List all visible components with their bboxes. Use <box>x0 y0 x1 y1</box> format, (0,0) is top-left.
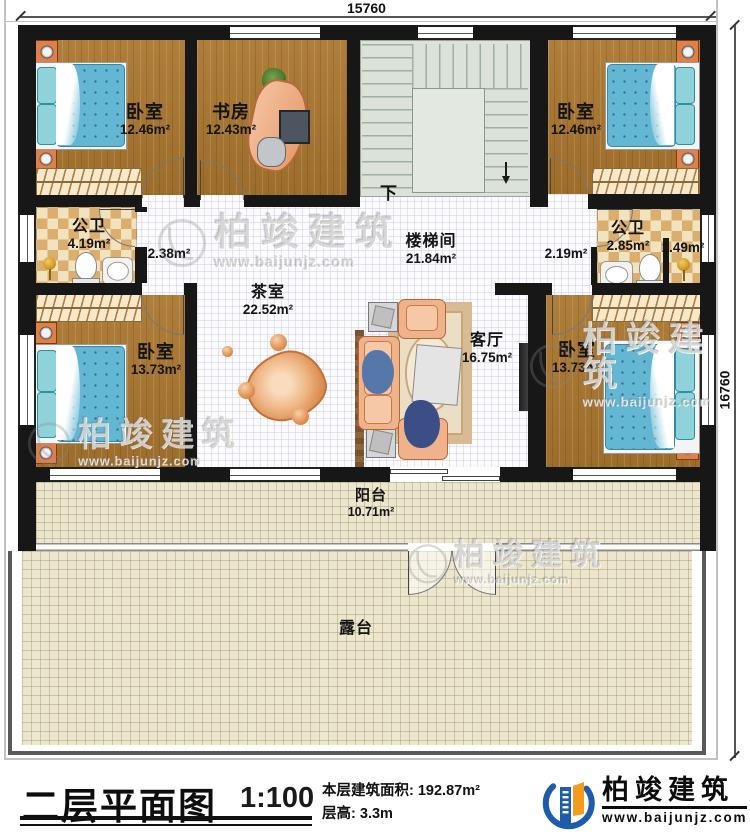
room-area: 4.19m² <box>68 236 111 251</box>
side-table <box>368 302 398 332</box>
tea-stool <box>292 408 309 425</box>
room-label-bedroom-bl: 卧室 13.73m² <box>131 342 181 377</box>
room-area: 1.49m² <box>662 240 705 255</box>
dimension-line-top <box>20 16 716 18</box>
wall-segment <box>18 283 142 295</box>
bed-pillow <box>37 67 57 104</box>
room-area: 21.84m² <box>405 251 456 266</box>
wall-segment <box>700 25 716 215</box>
coffee-table <box>412 344 463 406</box>
person-figure <box>362 350 394 394</box>
window <box>573 25 676 40</box>
room-label-bath-right: 公卫 2.85m² <box>607 220 650 253</box>
room-label-bedroom-tr: 卧室 12.46m² <box>551 102 601 137</box>
wall-segment <box>184 195 200 207</box>
wall-segment <box>592 283 700 295</box>
bed-pillow <box>37 104 57 145</box>
bed-pillow <box>675 392 695 440</box>
wall-segment <box>700 425 716 551</box>
wall-segment <box>700 262 716 335</box>
logo-divider <box>602 806 747 809</box>
wall-segment <box>244 195 360 207</box>
room-label-bedroom-tl: 卧室 12.46m² <box>120 102 170 137</box>
title-underline <box>20 824 312 826</box>
sofa-cushion <box>364 395 392 424</box>
area-label-shower: 1.49m² <box>662 240 705 255</box>
room-area: 2.38m² <box>148 246 191 261</box>
drawing-meta: 本层建筑面积: 192.87m² 层高: 3.3m <box>322 780 480 826</box>
nightstand <box>34 442 57 464</box>
window <box>18 335 36 425</box>
room-name: 卧室 <box>551 102 601 122</box>
wardrobe <box>592 168 699 196</box>
shower-stem <box>683 270 685 281</box>
wall-segment <box>135 207 147 212</box>
armchair-cushion <box>406 305 438 331</box>
room-area: 12.43m² <box>206 122 256 137</box>
computer-monitor <box>279 110 310 144</box>
person-figure <box>404 400 440 448</box>
wall-segment <box>18 425 36 551</box>
room-label-living-room: 客厅 16.75m² <box>462 332 512 365</box>
stair-direction-arrow <box>505 162 507 177</box>
shower-stem <box>49 269 51 280</box>
room-area: 22.52m² <box>243 302 293 317</box>
wall-segment <box>18 25 36 215</box>
wall-segment <box>18 25 230 40</box>
wall-segment <box>530 40 548 207</box>
wall-segment <box>160 467 230 482</box>
room-name: 阳台 <box>348 488 395 505</box>
wall-segment <box>597 199 700 209</box>
bed-sheet-fold <box>56 346 80 440</box>
nightstand <box>34 148 57 170</box>
room-area: 13.73m² <box>552 360 602 375</box>
floor-area-line: 本层建筑面积: 192.87m² <box>322 780 480 803</box>
window <box>50 467 160 482</box>
wardrobe <box>36 294 142 322</box>
nightstand <box>676 148 699 170</box>
toilet <box>639 254 661 282</box>
stair-landing <box>412 88 485 193</box>
wardrobe <box>36 168 142 196</box>
room-name: 客厅 <box>462 332 512 350</box>
room-label-balcony: 阳台 10.71m² <box>348 488 395 519</box>
room-label-terrace: 露台 <box>339 620 373 638</box>
tea-stool <box>270 334 287 351</box>
wall-segment <box>320 25 418 40</box>
room-name: 书房 <box>206 102 256 122</box>
room-area: 10.71m² <box>348 505 395 519</box>
room-name: 茶室 <box>243 284 293 302</box>
paper-edge-top <box>4 21 718 22</box>
room-area: 16.75m² <box>462 350 512 365</box>
side-table <box>366 426 396 458</box>
window <box>700 335 716 425</box>
room-name: 楼梯间 <box>405 233 456 251</box>
wall-segment <box>500 467 573 482</box>
area-label-hall-left: 2.38m² <box>148 246 191 261</box>
wall-segment <box>184 283 197 295</box>
nightstand <box>34 322 57 344</box>
bed-pillow <box>37 392 57 438</box>
room-name: 卧室 <box>552 340 602 360</box>
wall-segment <box>18 467 50 482</box>
stair-down-label: 下 <box>380 179 397 204</box>
wall-segment <box>320 467 390 482</box>
wall-segment <box>347 25 360 207</box>
stair-flight-top <box>412 44 528 88</box>
wall-segment <box>18 262 36 335</box>
sliding-door <box>442 476 500 481</box>
wall-segment <box>185 295 197 467</box>
bed-sheet-fold <box>650 344 674 448</box>
room-name: 公卫 <box>607 220 650 238</box>
room-area: 12.46m² <box>551 122 601 137</box>
dimension-line-right <box>734 25 736 758</box>
room-label-bath-left: 公卫 4.19m² <box>68 218 111 251</box>
wall-segment <box>473 25 573 40</box>
title-underline <box>20 816 312 820</box>
paper-edge-left <box>4 0 6 760</box>
wall-segment <box>495 283 548 295</box>
wall-segment <box>135 247 147 283</box>
room-name: 卧室 <box>131 342 181 362</box>
room-area: 13.73m² <box>131 362 181 377</box>
room-name: 公卫 <box>68 218 111 236</box>
nightstand <box>676 40 699 63</box>
stair-flight-left <box>362 44 412 193</box>
balcony-railing <box>36 543 408 551</box>
bed-sheet-fold <box>56 64 80 145</box>
window <box>573 467 676 482</box>
room-name: 露台 <box>339 620 373 638</box>
room-label-bedroom-br: 卧室 13.73m² <box>552 340 602 375</box>
floor-height-line: 层高: 3.3m <box>322 803 480 826</box>
bed-sheet-fold <box>650 64 674 145</box>
window <box>418 25 473 40</box>
dimension-width-label: 15760 <box>347 0 386 16</box>
paper-edge-bottom <box>4 758 718 760</box>
wardrobe <box>592 294 702 322</box>
drawing-scale: 1:100 <box>240 782 314 815</box>
sink <box>102 257 133 285</box>
floorplan-page: 15760 16760 下 <box>0 0 750 839</box>
tea-stool <box>238 382 255 399</box>
balcony-railing <box>496 543 700 551</box>
company-logo: 柏竣建筑 www.baijunjz.com <box>540 776 747 837</box>
window <box>230 467 320 482</box>
floor-height-label: 层高: <box>322 806 356 822</box>
window <box>230 25 320 40</box>
nightstand <box>35 40 58 63</box>
wall-segment <box>185 25 197 195</box>
dimension-height-label: 16760 <box>716 371 732 410</box>
desk-chair <box>257 137 286 167</box>
wall-segment <box>591 247 597 285</box>
room-area: 12.46m² <box>120 122 170 137</box>
wall-segment <box>546 283 552 295</box>
room-label-stairwell: 楼梯间 21.84m² <box>405 233 456 266</box>
stair-direction-arrowhead <box>502 176 510 184</box>
room-area: 2.85m² <box>607 238 650 253</box>
sliding-door <box>390 469 448 474</box>
bed-pillow <box>37 350 57 392</box>
bed-pillow <box>675 67 695 104</box>
floor-area-value: 192.87m² <box>418 783 480 799</box>
company-logo-icon <box>540 776 596 837</box>
wall-segment <box>36 195 142 207</box>
room-label-study: 书房 12.43m² <box>206 102 256 137</box>
room-name: 卧室 <box>120 102 170 122</box>
terrace-floor <box>22 551 692 745</box>
room-label-tea-room: 茶室 22.52m² <box>243 284 293 317</box>
room-area: 2.19m² <box>545 246 588 261</box>
company-website: www.baijunjz.com <box>602 810 747 825</box>
wall-segment <box>676 467 716 482</box>
tea-stool <box>222 346 233 357</box>
window <box>18 215 36 262</box>
floor-area-label: 本层建筑面积: <box>322 783 414 799</box>
toilet <box>75 252 97 280</box>
bed-pillow <box>675 104 695 145</box>
company-name: 柏竣建筑 <box>602 776 747 804</box>
wall-segment <box>528 292 546 467</box>
bed-pillow <box>675 348 695 392</box>
floor-height-value: 3.3m <box>360 806 393 822</box>
drawing-title: 二层平面图 <box>22 776 217 830</box>
area-label-hall-right: 2.19m² <box>545 246 588 261</box>
